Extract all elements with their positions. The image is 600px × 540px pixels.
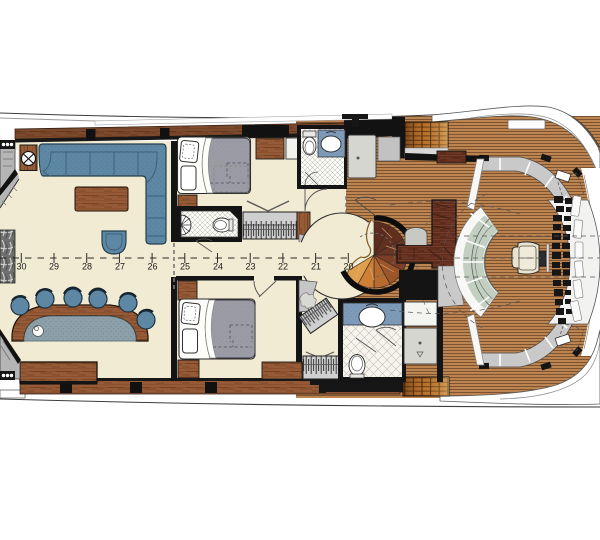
- svg-text:20: 20: [343, 262, 353, 272]
- svg-text:24: 24: [213, 262, 223, 272]
- svg-text:25: 25: [180, 262, 190, 272]
- svg-text:23: 23: [245, 262, 255, 272]
- svg-text:21: 21: [311, 262, 321, 272]
- svg-text:30: 30: [16, 262, 26, 272]
- svg-text:27: 27: [115, 262, 125, 272]
- svg-text:26: 26: [147, 262, 157, 272]
- svg-text:28: 28: [82, 262, 92, 272]
- svg-text:22: 22: [278, 262, 288, 272]
- svg-text:29: 29: [49, 262, 59, 272]
